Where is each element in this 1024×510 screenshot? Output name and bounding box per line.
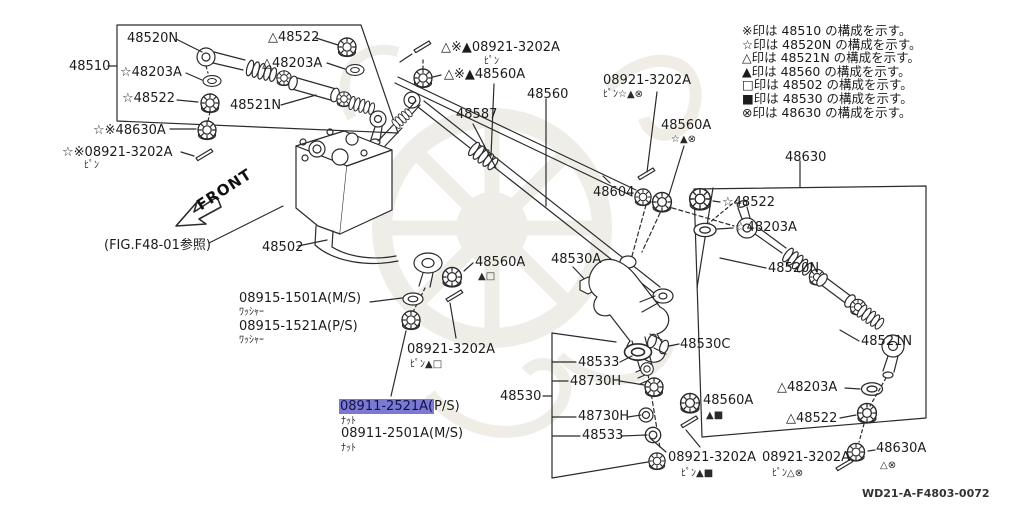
drawing-number: WD21-A-F4803-0072 <box>862 487 990 500</box>
legend-row: ▲印は 48560 の構成を示す。 <box>742 65 922 79</box>
part-label-48502: 48502 <box>262 241 303 255</box>
annotation-pin-symbols: ﾋﾟﾝ▲□ <box>410 360 442 370</box>
part-label-48520n: 48520N <box>127 32 178 46</box>
part-label-48560a-top: △※▲48560A <box>444 68 525 82</box>
part-label-48730h-2: 48730H <box>578 410 629 424</box>
annotation-symbols: ☆▲⊗ <box>671 135 696 145</box>
part-label-48730h-1: 48730H <box>570 375 621 389</box>
part-label-08921-left: ☆※08921-3202A <box>62 146 173 160</box>
part-label-48521n-right: 48521N <box>861 335 912 349</box>
part-label-48530a: 48530A <box>551 253 601 267</box>
part-label-08915-ps: 08915-1521A(P/S) <box>239 320 358 334</box>
part-label-08921-bottom-1: 08921-3202A <box>668 451 756 465</box>
annotation-nut: ﾅｯﾄ <box>341 444 356 454</box>
selected-text-highlight[interactable]: 08911-2521A( <box>339 399 434 414</box>
part-label-48560a-bottom: 48560A <box>703 394 753 408</box>
part-label-48604: 48604 <box>593 186 634 200</box>
annotation-pin: ﾋﾟﾝ <box>484 57 499 67</box>
part-label-48522-star-right: ☆48522 <box>722 196 775 210</box>
part-label-48521n: 48521N <box>230 99 281 113</box>
part-label-48203a-star-right: ☆48203A <box>735 221 797 235</box>
annotation-washer: ﾜｯｼｬｰ <box>239 308 264 318</box>
tie-rod-box-right-drawing <box>690 186 926 471</box>
annotation-pin-symbols: ﾋﾟﾝ☆▲⊗ <box>603 90 643 100</box>
part-label-08921-top: △※▲08921-3202A <box>441 41 560 55</box>
part-label-48203a: ☆48203A <box>120 66 182 80</box>
part-label-08911-ps-selected[interactable]: 08911-2521A(P/S) <box>339 400 460 414</box>
annotation-pin-symbols: ﾋﾟﾝ△⊗ <box>772 469 803 479</box>
annotation-symbols: △⊗ <box>880 461 896 471</box>
legend-row: ⊗印は 48630 の構成を示す。 <box>742 106 922 120</box>
part-label-48203a-tri: △48203A <box>262 57 322 71</box>
legend-row: □印は 48502 の構成を示す。 <box>742 78 922 92</box>
parts-diagram-page: ※印は 48510 の構成を示す。 ☆印は 48520N の構成を示す。 △印は… <box>0 0 1024 510</box>
part-label-48530: 48530 <box>500 390 541 404</box>
annotation-symbols: ▲□ <box>478 272 495 282</box>
part-label-08921-right-top: 08921-3202A <box>603 74 691 88</box>
part-label-suffix: P/S) <box>434 399 460 414</box>
part-label-48560a-mid: 48560A <box>475 256 525 270</box>
annotation-symbols: ▲■ <box>706 411 723 421</box>
part-label-48533-2: 48533 <box>582 429 623 443</box>
part-label-48522-tri-right: △48522 <box>786 412 837 426</box>
part-label-48560a-right-top: 48560A <box>661 119 711 133</box>
legend-row: △印は 48521N の構成を示す。 <box>742 51 922 65</box>
part-label-48533-1: 48533 <box>578 356 619 370</box>
part-label-08921-bottom-2: 08921-3202A <box>762 451 850 465</box>
annotation-washer: ﾜｯｼｬｰ <box>239 336 264 346</box>
part-label-48530c: 48530C <box>680 338 730 352</box>
part-label-08911-ms: 08911-2501A(M/S) <box>341 427 463 441</box>
legend-row: ■印は 48530 の構成を示す。 <box>742 92 922 106</box>
annotation-pin: ﾋﾟﾝ <box>84 161 99 171</box>
part-label-48520n-right: 48520N <box>768 262 819 276</box>
part-label-48587: 48587 <box>456 108 497 122</box>
part-label-08915-ms: 08915-1501A(M/S) <box>239 292 361 306</box>
legend-row: ※印は 48510 の構成を示す。 <box>742 24 922 38</box>
annotation-pin-symbols: ﾋﾟﾝ▲■ <box>681 469 713 479</box>
legend-row: ☆印は 48520N の構成を示す。 <box>742 38 922 52</box>
part-label-48560: 48560 <box>527 88 568 102</box>
part-label-48630: 48630 <box>785 151 826 165</box>
part-label-48203a-tri-right: △48203A <box>777 381 837 395</box>
part-label-48510: 48510 <box>69 60 110 74</box>
part-label-48630a-left: ☆※48630A <box>93 124 166 138</box>
part-label-48522: ☆48522 <box>122 92 175 106</box>
figure-reference: (FIG.F48-01参照) <box>104 239 211 253</box>
part-label-48522-tri: △48522 <box>268 31 319 45</box>
part-label-48630a-right: 48630A <box>876 442 926 456</box>
part-label-08921-mid: 08921-3202A <box>407 343 495 357</box>
symbol-legend: ※印は 48510 の構成を示す。 ☆印は 48520N の構成を示す。 △印は… <box>742 24 922 119</box>
